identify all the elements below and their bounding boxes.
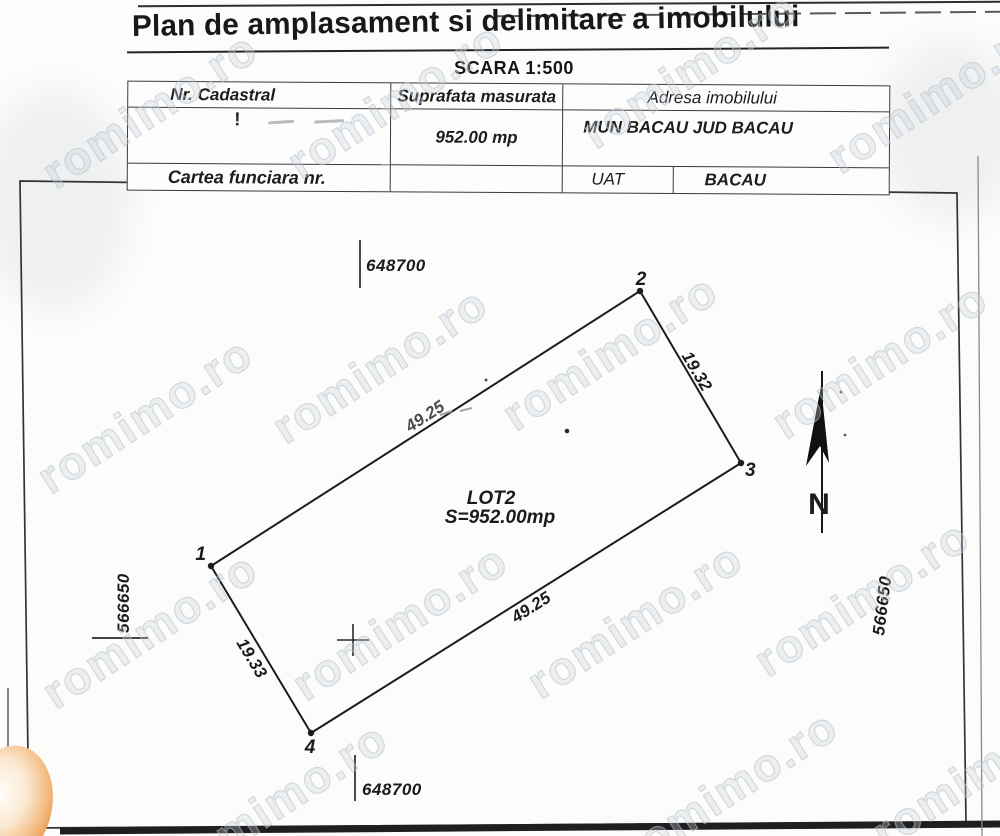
- grid-coord-top: 648700: [366, 256, 426, 275]
- adresa-header-text: Adresa imobilului: [647, 87, 777, 108]
- adresa-header: Adresa imobilului: [563, 84, 889, 112]
- grid-coord-right: 566650: [869, 575, 895, 637]
- north-label: N: [808, 488, 830, 521]
- cartea-funciara-label: Cartea funciara nr.: [128, 164, 391, 192]
- vertex-dot-3: [738, 460, 744, 466]
- uat-label: UAT: [591, 170, 624, 190]
- vertex-label-3: 3: [745, 460, 756, 481]
- suprafata-value: 952.00 mp: [391, 109, 563, 166]
- surveyor-cross: [337, 624, 369, 656]
- lot-number-label: LOT2: [467, 488, 516, 509]
- adresa-value-cell: MUN BACAU JUD BACAU: [563, 110, 889, 168]
- adresa-value: MUN BACAU JUD BACAU: [583, 117, 793, 138]
- grid-coord-bottom: 648700: [362, 780, 422, 799]
- uat-row-cell: UAT BACAU: [563, 166, 889, 194]
- uat-value-cell: BACAU: [674, 167, 889, 194]
- vertex-label-4: 4: [304, 737, 316, 758]
- scale-label: SCARA 1:500: [414, 58, 614, 79]
- ink-speck: [840, 391, 843, 394]
- nr-cadastral-header: Nr. Cadastral: [128, 82, 391, 110]
- uat-row: UAT BACAU: [563, 166, 889, 194]
- uat-value: BACAU: [704, 170, 766, 190]
- vertex-label-1: 1: [195, 544, 206, 565]
- nr-cadastral-mark: !: [234, 109, 240, 131]
- ink-speck: [565, 429, 570, 434]
- uat-label-cell: UAT: [563, 166, 674, 193]
- north-arrow-head: [806, 386, 829, 466]
- vertex-dot-4: [308, 730, 314, 736]
- vertex-dot-1: [208, 563, 214, 569]
- ink-speck: [844, 434, 847, 437]
- dimension-bottom: 49.25: [507, 588, 554, 628]
- ink-speck: [485, 379, 488, 382]
- dimension-right: 19.32: [678, 348, 716, 395]
- scan-page-edge-right: [978, 156, 982, 836]
- bottom-thick-rule: [60, 824, 1000, 831]
- erased-mark: [314, 119, 344, 123]
- cadastral-header-table: Nr. Cadastral Suprafata masurata Adresa …: [127, 81, 891, 196]
- dimension-top: 49.25: [401, 397, 448, 437]
- grid-coord-left: 566650: [114, 573, 133, 633]
- nr-cadastral-value-cell: !: [128, 108, 391, 166]
- vertex-label-2: 2: [635, 269, 647, 290]
- cartea-funciara-value-cell: [391, 165, 563, 192]
- lot-area-label: S=952.00mp: [445, 507, 555, 528]
- erased-mark: [268, 120, 294, 124]
- suprafata-header: Suprafata masurata: [391, 83, 563, 110]
- cadastral-plan-page: Plan de amplasament si delimitare a imob…: [0, 0, 1000, 836]
